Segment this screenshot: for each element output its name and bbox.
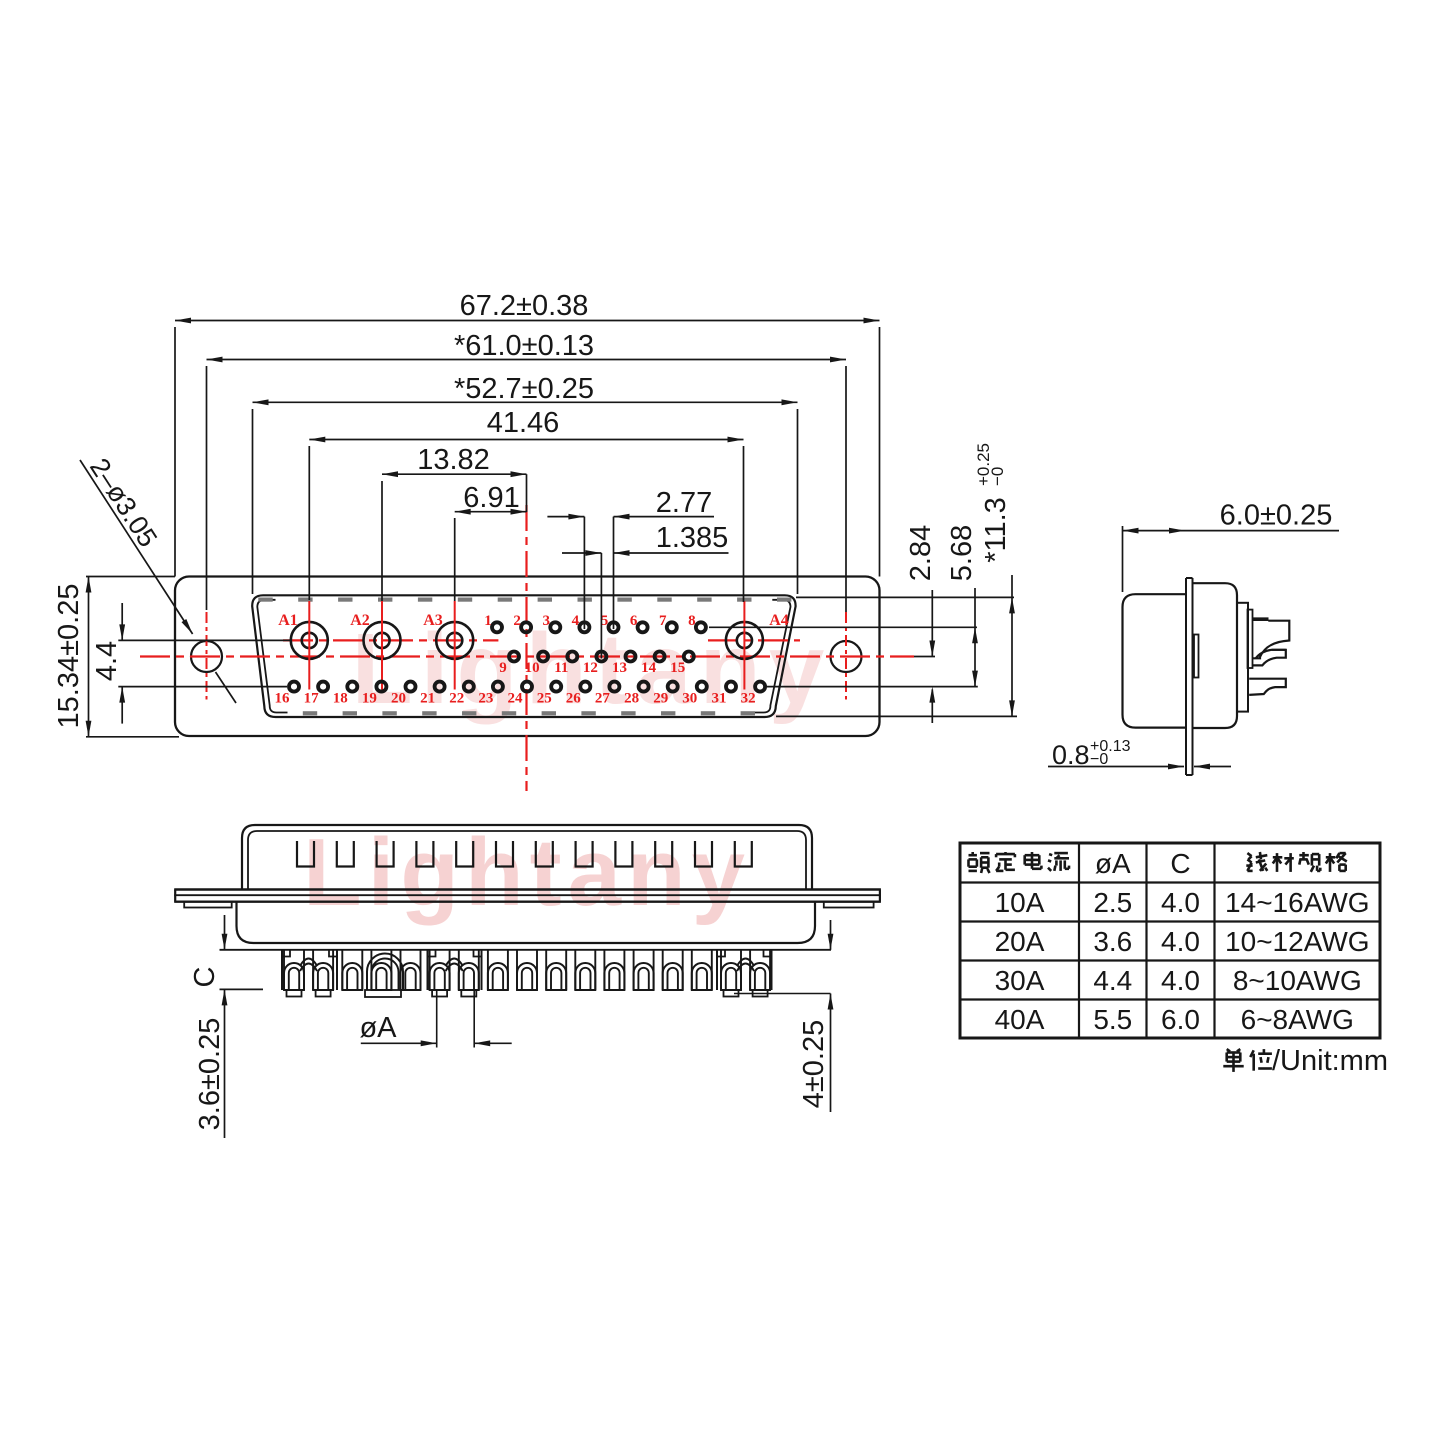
svg-text:3: 3 <box>543 613 551 629</box>
svg-text:C: C <box>189 967 221 988</box>
svg-text:24: 24 <box>508 691 524 707</box>
svg-text:A1: A1 <box>278 612 298 629</box>
svg-text:30: 30 <box>682 691 697 707</box>
svg-text:8: 8 <box>688 613 696 629</box>
svg-text:12: 12 <box>583 660 598 676</box>
svg-text:14: 14 <box>641 660 657 676</box>
svg-text:29: 29 <box>653 691 668 707</box>
svg-text:2.84: 2.84 <box>905 525 937 581</box>
svg-text:20: 20 <box>391 691 406 707</box>
svg-text:5.5: 5.5 <box>1093 1004 1132 1035</box>
svg-text:20A: 20A <box>995 926 1045 957</box>
svg-text:10~12AWG: 10~12AWG <box>1225 926 1369 957</box>
svg-text:11: 11 <box>554 660 568 676</box>
svg-text:4±0.25: 4±0.25 <box>798 1020 830 1109</box>
svg-text:A2: A2 <box>350 612 370 629</box>
svg-text:40A: 40A <box>995 1004 1045 1035</box>
svg-text:*52.7±0.25: *52.7±0.25 <box>454 373 594 405</box>
svg-text:øA: øA <box>1095 848 1131 879</box>
svg-text:5.68: 5.68 <box>946 525 978 581</box>
svg-text:−0: −0 <box>988 467 1007 486</box>
svg-text:31: 31 <box>712 691 727 707</box>
svg-text:13: 13 <box>612 660 627 676</box>
svg-text:*11.3: *11.3 <box>980 497 1012 563</box>
svg-text:2: 2 <box>513 613 521 629</box>
svg-text:Lightany: Lightany <box>303 819 751 926</box>
svg-text:7: 7 <box>659 613 667 629</box>
svg-text:15: 15 <box>670 660 685 676</box>
svg-text:3.6±0.25: 3.6±0.25 <box>194 1018 226 1131</box>
svg-text:6~8AWG: 6~8AWG <box>1241 1004 1354 1035</box>
svg-text:4.0: 4.0 <box>1161 926 1200 957</box>
svg-text:22: 22 <box>449 691 464 707</box>
svg-text:32: 32 <box>741 691 756 707</box>
svg-text:1.385: 1.385 <box>656 522 729 554</box>
svg-text:23: 23 <box>478 691 493 707</box>
svg-text:30A: 30A <box>995 965 1045 996</box>
svg-text:3.6: 3.6 <box>1093 926 1132 957</box>
svg-text:9: 9 <box>499 660 507 676</box>
svg-text:19: 19 <box>362 691 377 707</box>
svg-text:15.34±0.25: 15.34±0.25 <box>53 584 85 729</box>
svg-text:4.4: 4.4 <box>91 641 123 681</box>
svg-text:6.0: 6.0 <box>1161 1004 1200 1035</box>
svg-text:13.82: 13.82 <box>417 444 490 476</box>
svg-text:6.0±0.25: 6.0±0.25 <box>1220 500 1333 532</box>
svg-text:26: 26 <box>566 691 582 707</box>
svg-text:2.5: 2.5 <box>1093 887 1132 918</box>
svg-text:−0: −0 <box>1090 751 1108 768</box>
svg-text:4.0: 4.0 <box>1161 887 1200 918</box>
svg-text:10A: 10A <box>995 887 1045 918</box>
svg-text:1: 1 <box>484 613 492 629</box>
svg-text:8~10AWG: 8~10AWG <box>1233 965 1362 996</box>
svg-text:18: 18 <box>333 691 348 707</box>
svg-text:*61.0±0.13: *61.0±0.13 <box>454 330 594 362</box>
svg-text:21: 21 <box>420 691 435 707</box>
svg-text:27: 27 <box>595 691 611 707</box>
svg-text:25: 25 <box>537 691 552 707</box>
svg-text:4.4: 4.4 <box>1093 965 1132 996</box>
svg-text:C: C <box>1170 848 1190 879</box>
svg-text:2.77: 2.77 <box>656 487 712 519</box>
svg-text:14~16AWG: 14~16AWG <box>1225 887 1369 918</box>
svg-text:4.0: 4.0 <box>1161 965 1200 996</box>
svg-text:28: 28 <box>624 691 639 707</box>
svg-text:0.8: 0.8 <box>1052 740 1090 770</box>
svg-text:A3: A3 <box>423 612 443 629</box>
svg-text:øA: øA <box>359 1012 397 1044</box>
svg-text:/Unit:mm: /Unit:mm <box>1272 1045 1388 1077</box>
svg-text:6: 6 <box>630 613 638 629</box>
svg-text:17: 17 <box>304 691 320 707</box>
svg-text:67.2±0.38: 67.2±0.38 <box>460 290 589 322</box>
svg-text:4: 4 <box>572 613 580 629</box>
svg-text:16: 16 <box>275 691 291 707</box>
svg-text:41.46: 41.46 <box>487 407 560 439</box>
svg-text:10: 10 <box>525 660 540 676</box>
